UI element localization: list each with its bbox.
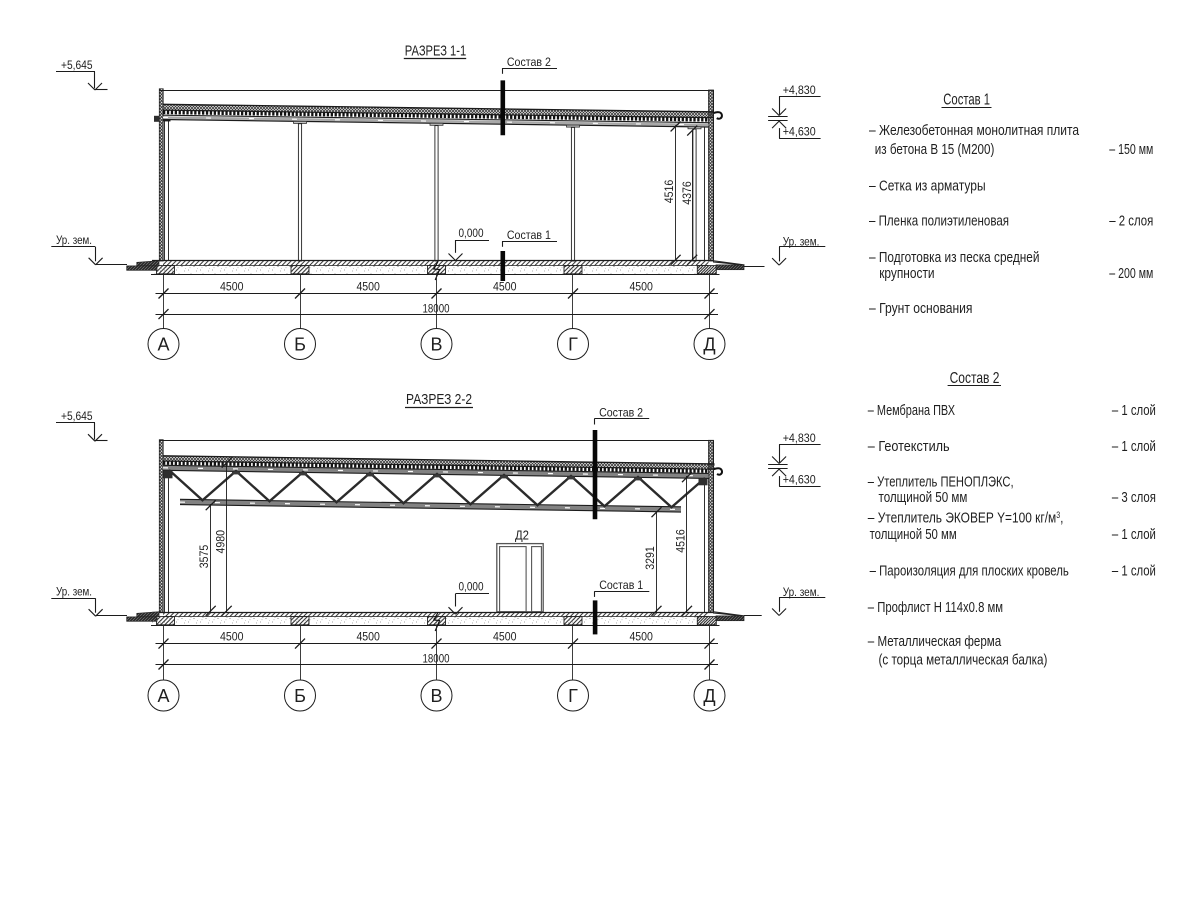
svg-text:– Грунт основания: – Грунт основания [869, 300, 973, 317]
svg-text:18000: 18000 [423, 652, 450, 666]
svg-text:(с торца металлическая балка): (с торца металлическая балка) [879, 652, 1048, 669]
svg-text:– 150 мм: – 150 мм [1109, 141, 1153, 158]
svg-text:4500: 4500 [356, 282, 380, 294]
svg-text:4500: 4500 [356, 632, 380, 644]
svg-text:4516: 4516 [676, 529, 688, 553]
svg-text:+4,630: +4,630 [783, 125, 816, 139]
svg-text:4500: 4500 [493, 632, 517, 644]
svg-text:Состав 1: Состав 1 [599, 578, 643, 592]
svg-text:В: В [430, 334, 442, 354]
svg-text:Г: Г [568, 334, 578, 354]
svg-text:– Сетка из арматуры: – Сетка из арматуры [869, 178, 986, 195]
svg-text:Состав 1: Состав 1 [943, 92, 990, 109]
svg-text:толщиной 50 мм: толщиной 50 мм [879, 489, 968, 506]
svg-text:+4,830: +4,830 [783, 431, 816, 445]
svg-text:Состав 2: Состав 2 [507, 55, 551, 69]
svg-text:крупности: крупности [879, 265, 934, 282]
svg-text:4500: 4500 [629, 632, 653, 644]
svg-text:– Мембрана ПВХ: – Мембрана ПВХ [868, 402, 955, 419]
svg-text:РАЗРЕЗ 2-2: РАЗРЕЗ 2-2 [406, 392, 472, 408]
svg-text:РАЗРЕЗ 1-1: РАЗРЕЗ 1-1 [405, 44, 466, 60]
svg-text:Состав 1: Состав 1 [507, 228, 551, 242]
svg-text:4500: 4500 [220, 282, 244, 294]
svg-text:– Утеплитель ПЕНОПЛЭКС,: – Утеплитель ПЕНОПЛЭКС, [868, 474, 1014, 491]
svg-text:Ур. зем.: Ур. зем. [56, 585, 92, 599]
svg-text:В: В [430, 686, 442, 706]
svg-text:Ур. зем.: Ур. зем. [783, 585, 820, 599]
svg-text:– 1 слой: – 1 слой [1112, 402, 1156, 419]
svg-text:А: А [157, 334, 169, 354]
svg-text:3575: 3575 [199, 545, 211, 569]
svg-text:– Пленка полиэтиленовая: – Пленка полиэтиленовая [869, 213, 1009, 230]
svg-text:А: А [157, 686, 169, 706]
svg-text:0,000: 0,000 [459, 580, 484, 594]
svg-text:4980: 4980 [215, 530, 227, 554]
svg-text:Д2: Д2 [515, 528, 529, 543]
svg-text:– 1 слой: – 1 слой [1112, 438, 1156, 455]
svg-text:– Геотекстиль: – Геотекстиль [868, 438, 950, 455]
svg-text:Ур. зем.: Ур. зем. [56, 233, 92, 247]
svg-text:18000: 18000 [423, 302, 450, 316]
svg-text:– 1 слой: – 1 слой [1112, 526, 1156, 543]
svg-text:0,000: 0,000 [459, 226, 484, 240]
svg-text:– Пароизоляция для плоских кро: – Пароизоляция для плоских кровель [870, 563, 1069, 580]
svg-text:Г: Г [568, 686, 578, 706]
svg-text:Б: Б [294, 686, 306, 706]
svg-text:– Железобетонная монолитная п: – Железобетонная монолитная плита [869, 122, 1079, 139]
svg-text:+5,645: +5,645 [61, 409, 93, 423]
svg-text:Состав 2: Состав 2 [950, 370, 1000, 387]
svg-text:4516: 4516 [664, 180, 676, 204]
svg-text:4500: 4500 [493, 282, 517, 294]
svg-text:Д: Д [703, 686, 715, 706]
svg-text:– 3 слоя: – 3 слоя [1112, 489, 1156, 506]
svg-text:– Подготовка из песка средней: – Подготовка из песка средней [869, 249, 1040, 266]
svg-text:– 200 мм: – 200 мм [1109, 265, 1153, 282]
svg-text:4500: 4500 [629, 282, 653, 294]
svg-text:+4,830: +4,830 [783, 83, 816, 97]
svg-text:Б: Б [294, 334, 306, 354]
svg-text:– 1 слой: – 1 слой [1112, 563, 1156, 580]
svg-text:4376: 4376 [682, 181, 694, 205]
svg-text:из бетона В 15 (М200): из бетона В 15 (М200) [875, 141, 995, 158]
svg-text:– Металлическая ферма: – Металлическая ферма [868, 633, 1002, 650]
svg-text:– Утеплитель ЭКОВЕР Y=100 кг/м: – Утеплитель ЭКОВЕР Y=100 кг/м3, [868, 510, 1064, 527]
svg-text:3291: 3291 [645, 546, 657, 570]
svg-text:Состав 2: Состав 2 [599, 406, 643, 420]
svg-text:+4,630: +4,630 [783, 473, 816, 487]
svg-text:толщиной 50 мм: толщиной 50 мм [870, 526, 957, 543]
svg-text:– 2 слоя: – 2 слоя [1109, 213, 1153, 230]
svg-text:– Профлист Н 114х0.8 мм: – Профлист Н 114х0.8 мм [868, 599, 1003, 616]
svg-text:Д: Д [703, 334, 715, 354]
svg-text:4500: 4500 [220, 632, 244, 644]
svg-text:+5,645: +5,645 [61, 58, 93, 72]
